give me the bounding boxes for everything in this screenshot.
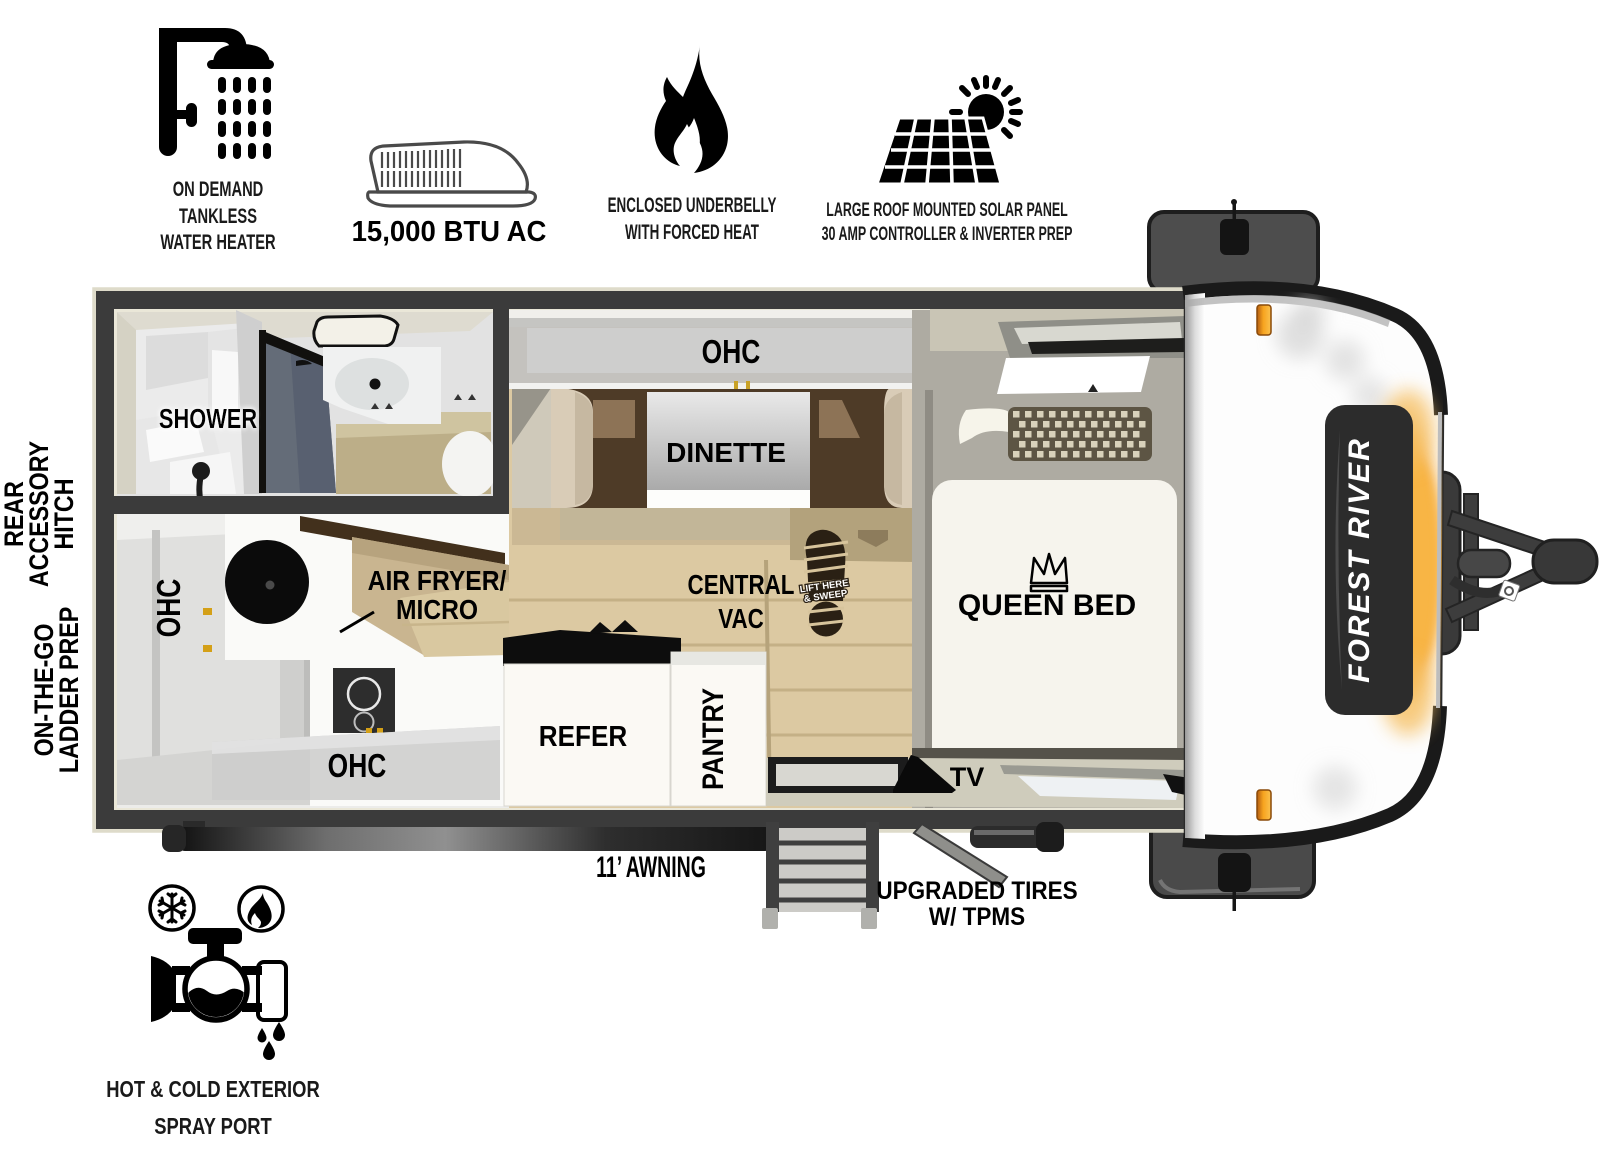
svg-text:OHC: OHC bbox=[328, 748, 387, 784]
svg-text:UPGRADED TIRES: UPGRADED TIRES bbox=[876, 877, 1077, 905]
svg-text:SHOWER: SHOWER bbox=[159, 403, 257, 434]
svg-text:AIR FRYER/: AIR FRYER/ bbox=[368, 565, 507, 597]
svg-text:WITH FORCED HEAT: WITH FORCED HEAT bbox=[625, 220, 759, 244]
svg-text:QUEEN BED: QUEEN BED bbox=[958, 589, 1136, 622]
svg-text:WATER HEATER: WATER HEATER bbox=[160, 230, 275, 253]
svg-text:TANKLESS: TANKLESS bbox=[179, 204, 257, 227]
svg-text:REFER: REFER bbox=[539, 720, 628, 753]
svg-text:11’ AWNING: 11’ AWNING bbox=[596, 851, 706, 884]
svg-text:TV: TV bbox=[950, 762, 985, 792]
svg-text:30 AMP CONTROLLER & INVERTER P: 30 AMP CONTROLLER & INVERTER PREP bbox=[822, 223, 1073, 244]
svg-text:LADDER PREP: LADDER PREP bbox=[54, 607, 84, 773]
svg-text:SPRAY PORT: SPRAY PORT bbox=[154, 1114, 272, 1139]
svg-text:OHC: OHC bbox=[702, 334, 761, 370]
svg-text:MICRO: MICRO bbox=[396, 594, 478, 626]
svg-text:ENCLOSED UNDERBELLY: ENCLOSED UNDERBELLY bbox=[608, 193, 777, 217]
svg-text:DINETTE: DINETTE bbox=[666, 437, 786, 468]
svg-text:PANTRY: PANTRY bbox=[696, 688, 729, 790]
svg-text:W/ TPMS: W/ TPMS bbox=[929, 903, 1025, 931]
svg-text:HITCH: HITCH bbox=[49, 479, 79, 550]
svg-text:OHC: OHC bbox=[151, 579, 187, 638]
svg-text:FOREST RIVER: FOREST RIVER bbox=[1343, 437, 1376, 683]
svg-text:CENTRAL: CENTRAL bbox=[688, 570, 795, 601]
svg-text:15,000 BTU AC: 15,000 BTU AC bbox=[352, 214, 547, 247]
svg-text:ON DEMAND: ON DEMAND bbox=[173, 177, 264, 200]
svg-text:VAC: VAC bbox=[718, 604, 764, 635]
svg-text:LARGE ROOF MOUNTED SOLAR PANEL: LARGE ROOF MOUNTED SOLAR PANEL bbox=[826, 199, 1068, 220]
svg-text:HOT & COLD EXTERIOR: HOT & COLD EXTERIOR bbox=[106, 1077, 320, 1102]
